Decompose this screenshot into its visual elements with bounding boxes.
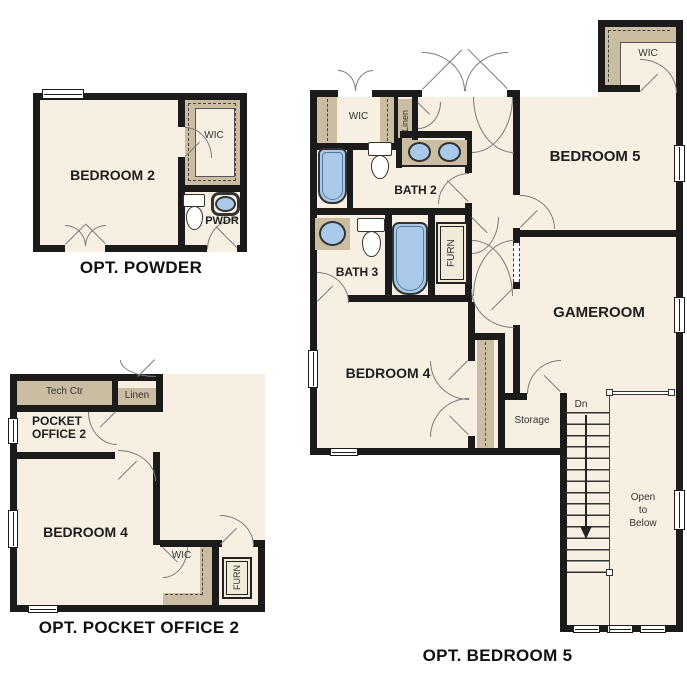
window — [607, 625, 633, 633]
wall — [505, 393, 527, 400]
wall — [468, 436, 475, 448]
cased-opening-dashed — [513, 243, 520, 282]
wall — [347, 143, 353, 215]
door-arc — [465, 52, 508, 91]
wall — [560, 393, 567, 632]
wall — [598, 20, 605, 92]
wall — [468, 302, 475, 361]
window — [308, 350, 318, 388]
window — [674, 145, 685, 182]
tech-ctr-label: Tech Ctr — [17, 386, 112, 397]
wall — [33, 93, 40, 252]
window — [640, 625, 666, 633]
wall — [212, 540, 219, 612]
furn-label: FURN — [436, 224, 468, 282]
wall — [105, 245, 207, 252]
wic-rod-dashed — [387, 99, 388, 141]
wall — [240, 93, 247, 252]
linen-label: Linen — [398, 102, 412, 140]
wall — [178, 100, 185, 127]
furn-label: FURN — [222, 558, 252, 598]
toilet-tank-icon — [368, 142, 392, 156]
stairs-arrow-head — [580, 526, 592, 539]
linen-label: Linen — [118, 390, 156, 401]
wall — [258, 540, 265, 612]
wic-label: WIC — [620, 48, 676, 59]
wall — [513, 90, 520, 195]
plan-opt-bedroom5: FURN WIC Linen BATH 2 BEDROOM 5 WIC BATH… — [308, 14, 687, 674]
window — [573, 625, 600, 633]
pocket-office-label-2: OFFICE 2 — [32, 427, 112, 441]
window — [28, 605, 58, 613]
door-arc — [338, 70, 356, 91]
window — [42, 89, 84, 99]
open-to-below-label-3: Below — [610, 518, 676, 529]
window — [674, 297, 685, 333]
wall — [513, 325, 520, 393]
wall — [10, 405, 118, 412]
wall — [178, 185, 247, 192]
bedroom4-label: BEDROOM 4 — [318, 365, 458, 381]
pwdr-label: PWDR — [200, 215, 244, 227]
sink-basin-icon — [438, 142, 461, 162]
wall — [470, 333, 505, 340]
railing — [610, 391, 672, 395]
plan-caption: OPT. BEDROOM 5 — [308, 646, 687, 666]
wall — [598, 85, 640, 92]
stairs-arrow-line — [585, 415, 587, 527]
wall — [598, 20, 683, 27]
storage-label: Storage — [502, 415, 562, 426]
plan-opt-pocket-office: FURN Tech Ctr Linen POCKET OFFICE 2 BEDR… — [8, 358, 270, 640]
plan-caption: OPT. POWDER — [30, 258, 252, 278]
sink-basin-icon — [215, 196, 236, 212]
rail-post — [606, 569, 613, 576]
wall — [153, 452, 160, 545]
wic-rod-dashed — [327, 99, 328, 141]
bedroom4-label: BEDROOM 4 — [18, 524, 153, 540]
plan-caption: OPT. POCKET OFFICE 2 — [8, 618, 270, 638]
rail-post — [606, 389, 613, 396]
wall — [237, 245, 247, 252]
wall — [33, 245, 65, 252]
wic-label: WIC — [337, 111, 380, 122]
wall — [385, 215, 392, 295]
sink-basin-icon — [319, 221, 346, 246]
tub-basin — [322, 152, 343, 200]
wall — [428, 208, 435, 302]
sink-basin-icon — [408, 142, 431, 162]
wall — [310, 208, 472, 215]
wall — [253, 540, 265, 547]
wic-label: WIC — [195, 130, 233, 141]
wall — [513, 230, 683, 237]
rail-post — [668, 389, 675, 396]
dn-label: Dn — [567, 399, 595, 410]
window — [8, 510, 18, 548]
wall — [513, 282, 520, 289]
door-arc — [355, 70, 373, 91]
wall — [498, 340, 505, 455]
plan-opt-powder: BEDROOM 2 WIC PWDR OPT. POWDER — [30, 88, 252, 280]
pocket-office-label-1: POCKET — [32, 414, 112, 428]
bedroom5-label: BEDROOM 5 — [540, 148, 650, 165]
wall — [348, 295, 435, 302]
floorplan-sheet: BEDROOM 2 WIC PWDR OPT. POWDER — [0, 0, 687, 687]
bathtub-icon — [318, 148, 347, 204]
window — [8, 418, 18, 444]
stairs — [567, 412, 610, 575]
door-arc — [422, 52, 465, 91]
window — [330, 448, 358, 456]
wall — [118, 405, 163, 412]
wall — [428, 295, 472, 302]
open-to-below-label-2: to — [610, 505, 676, 516]
tub-basin — [396, 226, 424, 291]
bathtub-icon — [392, 222, 428, 295]
bedroom2-label: BEDROOM 2 — [50, 167, 175, 183]
toilet-tank-icon — [357, 218, 385, 232]
bath3-label: BATH 3 — [322, 265, 392, 279]
bath2-label: BATH 2 — [368, 183, 463, 197]
wic-label: WIC — [163, 550, 200, 561]
chase-dashed — [485, 342, 486, 446]
open-to-below-label-1: Open — [610, 492, 676, 503]
gameroom-label: GAMEROOM — [529, 304, 669, 321]
wall — [10, 452, 115, 459]
toilet-bowl-icon — [362, 231, 381, 257]
